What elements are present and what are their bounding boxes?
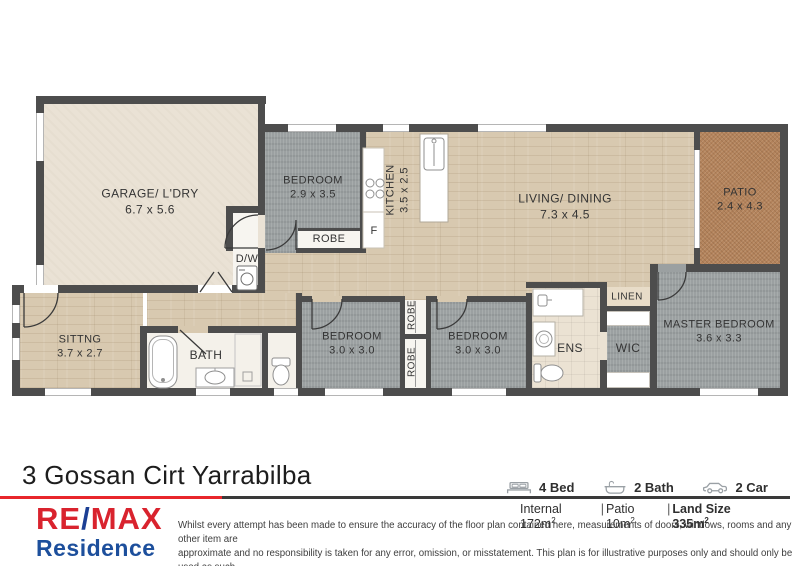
- room-label-robe-mid-top: ROBE: [406, 300, 419, 330]
- room-label-ens: ENS: [557, 341, 583, 357]
- label-fridge: F: [370, 224, 377, 238]
- room-label-bedroom3: BEDROOM3.0 x 3.0: [322, 330, 382, 359]
- bath-shower: [235, 334, 261, 386]
- ens-toilet: [534, 364, 563, 382]
- room-label-living: LIVING/ DINING7.3 x 4.5: [518, 191, 612, 222]
- room-label-robe-mid-bottom: ROBE: [406, 347, 419, 377]
- wc-toilet: [272, 358, 290, 385]
- room-label-bedroom4: BEDROOM3.0 x 3.0: [448, 330, 508, 359]
- kitchen-island: [420, 134, 448, 222]
- bath-vanity: [196, 368, 234, 387]
- brand-divider-dark: [222, 496, 790, 499]
- feature-summary: 4 Bed 2 Bath 2 Car: [506, 477, 768, 497]
- disclaimer-text: Whilst every attempt has been made to en…: [178, 519, 796, 566]
- room-label-bedroom-top: BEDROOM2.9 x 3.5: [283, 174, 343, 203]
- fixtures-layer: [0, 0, 800, 450]
- feature-baths-label: 2 Bath: [634, 480, 674, 495]
- floorplan-page: GARAGE/ L'DRY6.7 x 5.6 BEDROOM2.9 x 3.5 …: [0, 0, 800, 566]
- room-label-garage: GARAGE/ L'DRY6.7 x 5.6: [101, 186, 198, 217]
- remax-office-name: Residence: [36, 537, 163, 560]
- feature-beds: 4 Bed: [506, 479, 574, 496]
- bath-icon: [603, 479, 627, 496]
- bed-icon: [506, 479, 532, 496]
- feature-cars-label: 2 Car: [735, 480, 768, 495]
- remax-logo: RE/MAX Residence: [36, 503, 163, 560]
- area-separator: |: [665, 502, 672, 516]
- washer-icon: [237, 266, 257, 290]
- ens-vanity: [533, 322, 555, 356]
- room-label-kitchen: KITCHEN3.5 x 2.5: [384, 164, 413, 215]
- room-label-wic: WIC: [616, 341, 641, 357]
- room-label-linen: LINEN: [611, 291, 642, 304]
- room-label-sitting: SITTNG3.7 x 2.7: [57, 333, 103, 362]
- feature-cars: 2 Car: [702, 479, 768, 496]
- page-title: 3 Gossan Cirt Yarrabilba: [22, 460, 311, 491]
- bath-tub: [149, 336, 177, 388]
- room-label-bath: BATH: [190, 348, 223, 364]
- car-icon: [702, 479, 728, 496]
- room-label-patio: PATIO2.4 x 4.3: [717, 186, 763, 215]
- room-label-robe-top: ROBE: [313, 232, 346, 246]
- floorplan-drawing: GARAGE/ L'DRY6.7 x 5.6 BEDROOM2.9 x 3.5 …: [0, 0, 800, 450]
- feature-beds-label: 4 Bed: [539, 480, 574, 495]
- remax-wordmark: RE/MAX: [36, 503, 163, 534]
- feature-baths: 2 Bath: [603, 479, 674, 496]
- ens-shower: [533, 289, 583, 316]
- room-label-master: MASTER BEDROOM3.6 x 3.3: [663, 318, 774, 347]
- label-dishwasher: D/W: [236, 252, 259, 266]
- brand-divider-red: [0, 496, 222, 499]
- area-separator: |: [599, 502, 606, 516]
